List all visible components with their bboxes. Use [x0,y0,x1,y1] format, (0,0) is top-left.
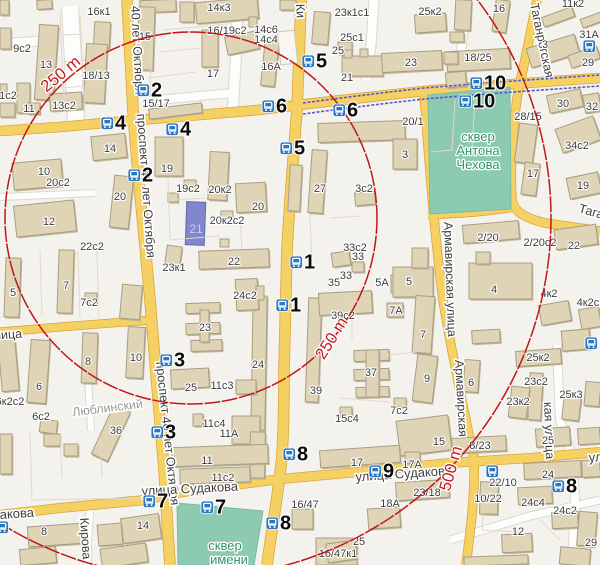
svg-text:Чехова: Чехова [456,157,500,172]
svg-text:23с2: 23с2 [524,376,548,388]
svg-text:14: 14 [104,143,116,155]
svg-text:24: 24 [542,469,554,481]
svg-text:17А: 17А [402,459,422,471]
svg-text:4: 4 [491,284,497,296]
svg-text:10: 10 [473,91,495,113]
svg-text:20: 20 [114,191,126,203]
svg-text:5: 5 [406,276,412,288]
svg-text:24с4: 24с4 [521,497,545,509]
svg-text:улица: улица [0,327,23,343]
svg-text:9: 9 [424,373,430,385]
svg-text:22: 22 [228,256,240,268]
svg-text:10: 10 [130,352,142,364]
svg-text:14к3: 14к3 [207,2,230,14]
svg-text:7: 7 [157,491,168,513]
svg-text:имени: имени [210,552,248,565]
svg-text:4: 4 [115,113,127,135]
svg-text:улица: улица [588,447,600,465]
svg-text:11: 11 [23,103,34,115]
svg-text:39: 39 [310,385,322,397]
svg-text:3: 3 [542,39,548,51]
svg-text:2: 2 [151,80,162,102]
svg-text:8: 8 [85,356,91,368]
svg-text:35: 35 [328,277,340,289]
svg-text:34с2: 34с2 [565,140,589,152]
svg-text:8: 8 [41,526,47,538]
svg-text:7: 7 [420,329,426,341]
svg-text:сквер: сквер [461,129,494,144]
svg-text:20с2: 20с2 [46,177,70,189]
svg-text:8: 8 [280,513,291,535]
svg-text:акова: акова [0,505,35,522]
svg-text:9с2: 9с2 [13,43,31,55]
svg-text:9: 9 [383,461,394,483]
svg-text:11с3: 11с3 [210,380,233,392]
svg-text:20: 20 [252,201,264,213]
svg-text:22: 22 [568,240,580,252]
svg-text:8: 8 [566,476,577,498]
svg-text:16/47к1: 16/47к1 [319,548,357,560]
svg-text:32: 32 [586,101,598,113]
svg-text:24с2: 24с2 [233,290,257,302]
svg-text:5: 5 [10,287,16,299]
svg-text:25: 25 [542,435,554,447]
svg-text:17: 17 [351,457,363,469]
svg-text:25к3: 25к3 [559,389,582,401]
svg-text:11к2: 11к2 [562,0,584,10]
svg-text:7А: 7А [389,305,403,317]
svg-text:19: 19 [577,180,589,192]
svg-text:21: 21 [341,72,353,84]
svg-text:6: 6 [276,96,287,118]
svg-text:31А: 31А [579,29,599,41]
svg-text:25: 25 [185,382,197,394]
svg-text:20к2с2: 20к2с2 [210,215,245,227]
svg-text:12: 12 [512,526,524,538]
svg-text:21: 21 [189,222,203,236]
svg-text:5: 5 [294,138,305,160]
svg-text:13с2: 13с2 [52,100,76,112]
svg-text:7: 7 [215,497,226,519]
svg-text:23к2: 23к2 [506,396,529,408]
svg-text:6к2с2: 6к2с2 [0,396,24,408]
svg-text:23к1с1: 23к1с1 [335,7,370,19]
svg-text:25к2: 25к2 [526,352,549,364]
svg-text:30: 30 [557,98,569,110]
svg-text:6: 6 [468,377,474,389]
svg-text:7: 7 [63,280,69,292]
svg-text:20к2: 20к2 [208,184,231,196]
svg-text:6с2: 6с2 [32,411,50,423]
svg-text:2/20с2: 2/20с2 [523,237,556,249]
svg-text:16А: 16А [261,61,281,73]
svg-text:18/13: 18/13 [82,70,110,82]
svg-text:25с1: 25с1 [340,32,364,44]
svg-text:22/10: 22/10 [489,477,517,489]
svg-text:10/22: 10/22 [474,493,502,505]
svg-text:4: 4 [180,119,192,141]
svg-text:37: 37 [365,367,377,379]
svg-text:1: 1 [304,252,315,274]
svg-text:Ки: Ки [293,3,308,18]
svg-text:33: 33 [352,251,364,263]
svg-text:11: 11 [201,455,212,467]
svg-text:Антона: Антона [456,143,500,158]
svg-text:1: 1 [290,295,301,317]
svg-text:7с2: 7с2 [390,405,408,417]
svg-text:16: 16 [493,3,505,15]
svg-text:13: 13 [40,59,52,71]
svg-text:24с2: 24с2 [553,505,577,517]
svg-text:2/20: 2/20 [477,232,498,244]
svg-text:сквер: сквер [208,538,241,553]
svg-text:5: 5 [316,51,327,73]
svg-text:2: 2 [142,165,153,187]
svg-text:15с4: 15с4 [335,413,359,425]
svg-text:3с2: 3с2 [355,183,373,195]
svg-text:15: 15 [433,436,445,448]
svg-text:19с2: 19с2 [176,183,200,195]
svg-text:4к2с2: 4к2с2 [577,297,600,309]
svg-text:36: 36 [110,425,122,437]
svg-text:5А: 5А [375,277,389,289]
svg-text:18/25: 18/25 [464,52,492,64]
svg-text:Кирова: Кирова [77,517,94,560]
svg-text:23к1: 23к1 [162,262,185,274]
svg-text:27: 27 [314,183,326,195]
svg-text:33: 33 [340,270,352,282]
svg-text:7с2: 7с2 [80,297,98,309]
svg-text:11с2: 11с2 [211,472,234,484]
svg-text:3: 3 [174,350,185,372]
svg-text:14с4: 14с4 [254,34,278,46]
svg-text:3: 3 [402,149,408,161]
svg-text:кая улица: кая улица [541,402,557,460]
svg-text:19: 19 [161,163,173,175]
svg-text:17: 17 [527,168,539,180]
svg-text:20/1: 20/1 [402,116,423,128]
svg-text:11А: 11А [220,428,239,440]
svg-text:3: 3 [165,422,176,444]
svg-text:12: 12 [43,216,55,228]
svg-text:18А: 18А [380,498,400,510]
svg-text:6: 6 [347,100,358,122]
svg-text:22с2: 22с2 [80,241,104,253]
svg-text:1с2: 1с2 [0,90,17,102]
svg-text:6: 6 [36,381,42,393]
svg-text:29: 29 [585,537,597,549]
svg-text:17: 17 [207,68,219,80]
svg-text:8: 8 [297,444,308,466]
svg-text:23: 23 [199,322,211,334]
svg-text:24: 24 [252,359,264,371]
svg-text:23: 23 [405,57,417,69]
svg-text:14: 14 [137,520,149,532]
svg-text:29: 29 [582,57,594,69]
svg-text:25к2: 25к2 [418,6,441,18]
svg-text:25: 25 [332,45,344,57]
svg-text:16к1: 16к1 [87,6,110,18]
svg-text:16/47: 16/47 [291,499,319,511]
